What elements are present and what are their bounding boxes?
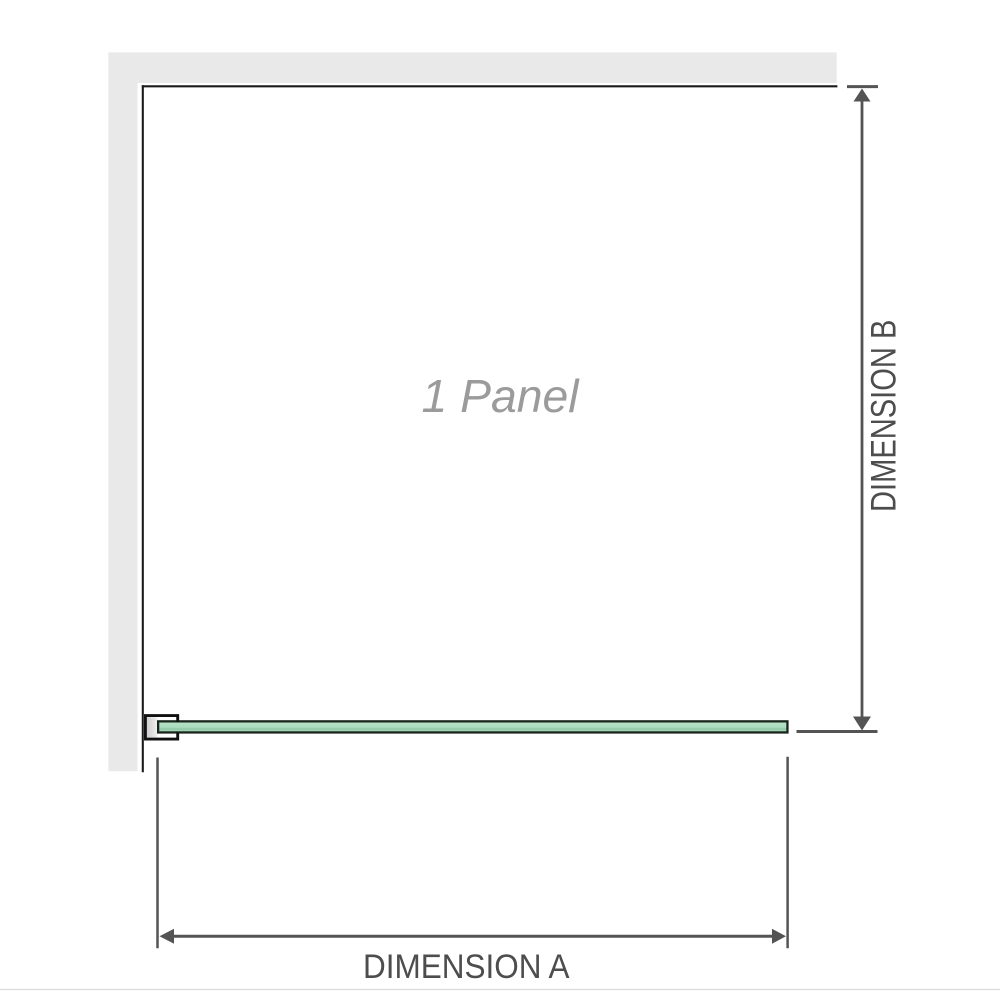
svg-text:DIMENSION B: DIMENSION B <box>865 320 904 513</box>
svg-text:DIMENSION A: DIMENSION A <box>363 948 570 986</box>
svg-text:1 Panel: 1 Panel <box>422 370 581 422</box>
